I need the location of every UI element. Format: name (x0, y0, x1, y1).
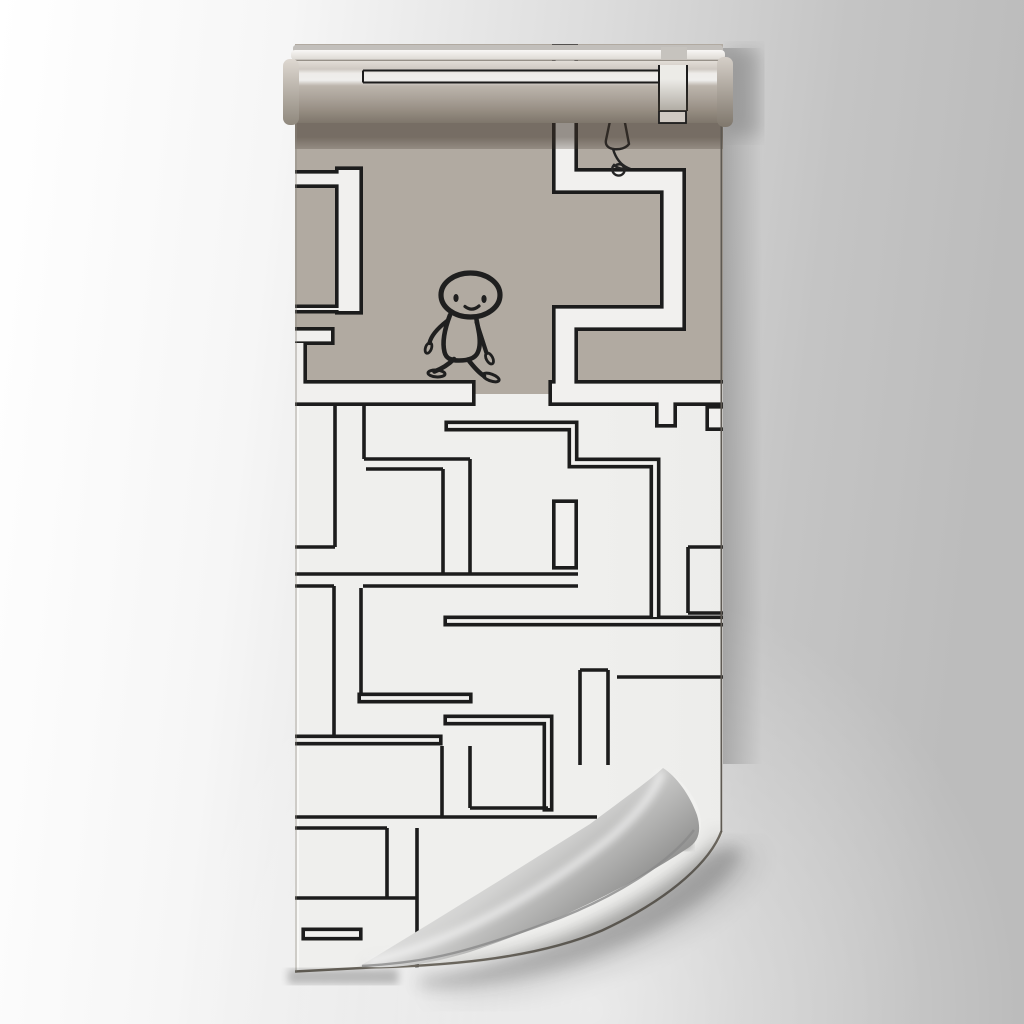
character-right-eye (481, 295, 486, 303)
roll-print-shading (658, 79, 688, 111)
roll-end-cap-right (717, 57, 733, 127)
roll-print-lip-band (661, 47, 687, 59)
roll-print-mini-rect (659, 111, 686, 123)
character-left-eye (453, 294, 458, 302)
mockup-photo (0, 0, 1024, 1024)
roll-end-cap-left (283, 59, 299, 125)
bottom-edge-shadow (288, 969, 398, 984)
roll-outer-lip (291, 50, 725, 60)
sheet-right-shadow (722, 48, 762, 764)
wallpaper-roll (283, 45, 733, 127)
scene-canvas (0, 0, 1024, 1024)
